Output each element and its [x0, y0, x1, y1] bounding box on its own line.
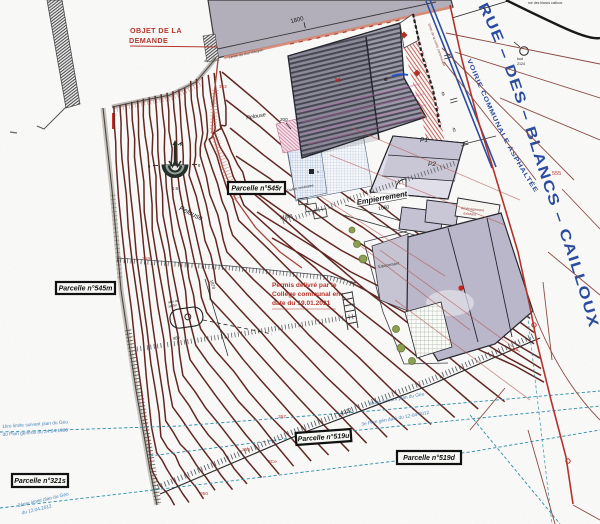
svg-text:DEMANDE: DEMANDE — [129, 36, 168, 45]
svg-text:Parcelle n°519d: Parcelle n°519d — [403, 454, 456, 462]
svg-text:OBJET DE LA: OBJET DE LA — [130, 26, 182, 35]
svg-text:2124: 2124 — [517, 62, 525, 66]
svg-text:P1: P1 — [420, 137, 428, 144]
svg-text:350: 350 — [200, 491, 208, 497]
svg-text:ø: ø — [384, 77, 388, 83]
svg-text:Parcelle n°321s: Parcelle n°321s — [14, 477, 66, 485]
svg-text:3Ce: 3Ce — [268, 459, 277, 465]
svg-text:355: 355 — [242, 447, 250, 453]
svg-text:358: 358 — [142, 256, 150, 262]
svg-text:200: 200 — [280, 117, 288, 122]
svg-text:1 8: 1 8 — [172, 186, 178, 191]
svg-text:rue des blancs cailloux: rue des blancs cailloux — [528, 1, 563, 5]
svg-text:Parcelle n°545m: Parcelle n°545m — [59, 285, 113, 293]
svg-text:Parcelle n°545r: Parcelle n°545r — [231, 185, 283, 193]
svg-text:date du 19.01.2021: date du 19.01.2021 — [272, 300, 331, 307]
svg-text:*: * — [317, 171, 319, 177]
svg-text:555: 555 — [552, 171, 561, 177]
svg-text:Permis délivré par le: Permis délivré par le — [272, 282, 337, 289]
svg-text:353: 353 — [219, 84, 227, 89]
svg-text:Collège communal en: Collège communal en — [272, 291, 340, 298]
svg-text:355: 355 — [510, 347, 518, 353]
svg-text:357: 357 — [278, 414, 286, 420]
svg-text:N: N — [180, 142, 183, 147]
svg-text:tout: tout — [517, 57, 523, 61]
